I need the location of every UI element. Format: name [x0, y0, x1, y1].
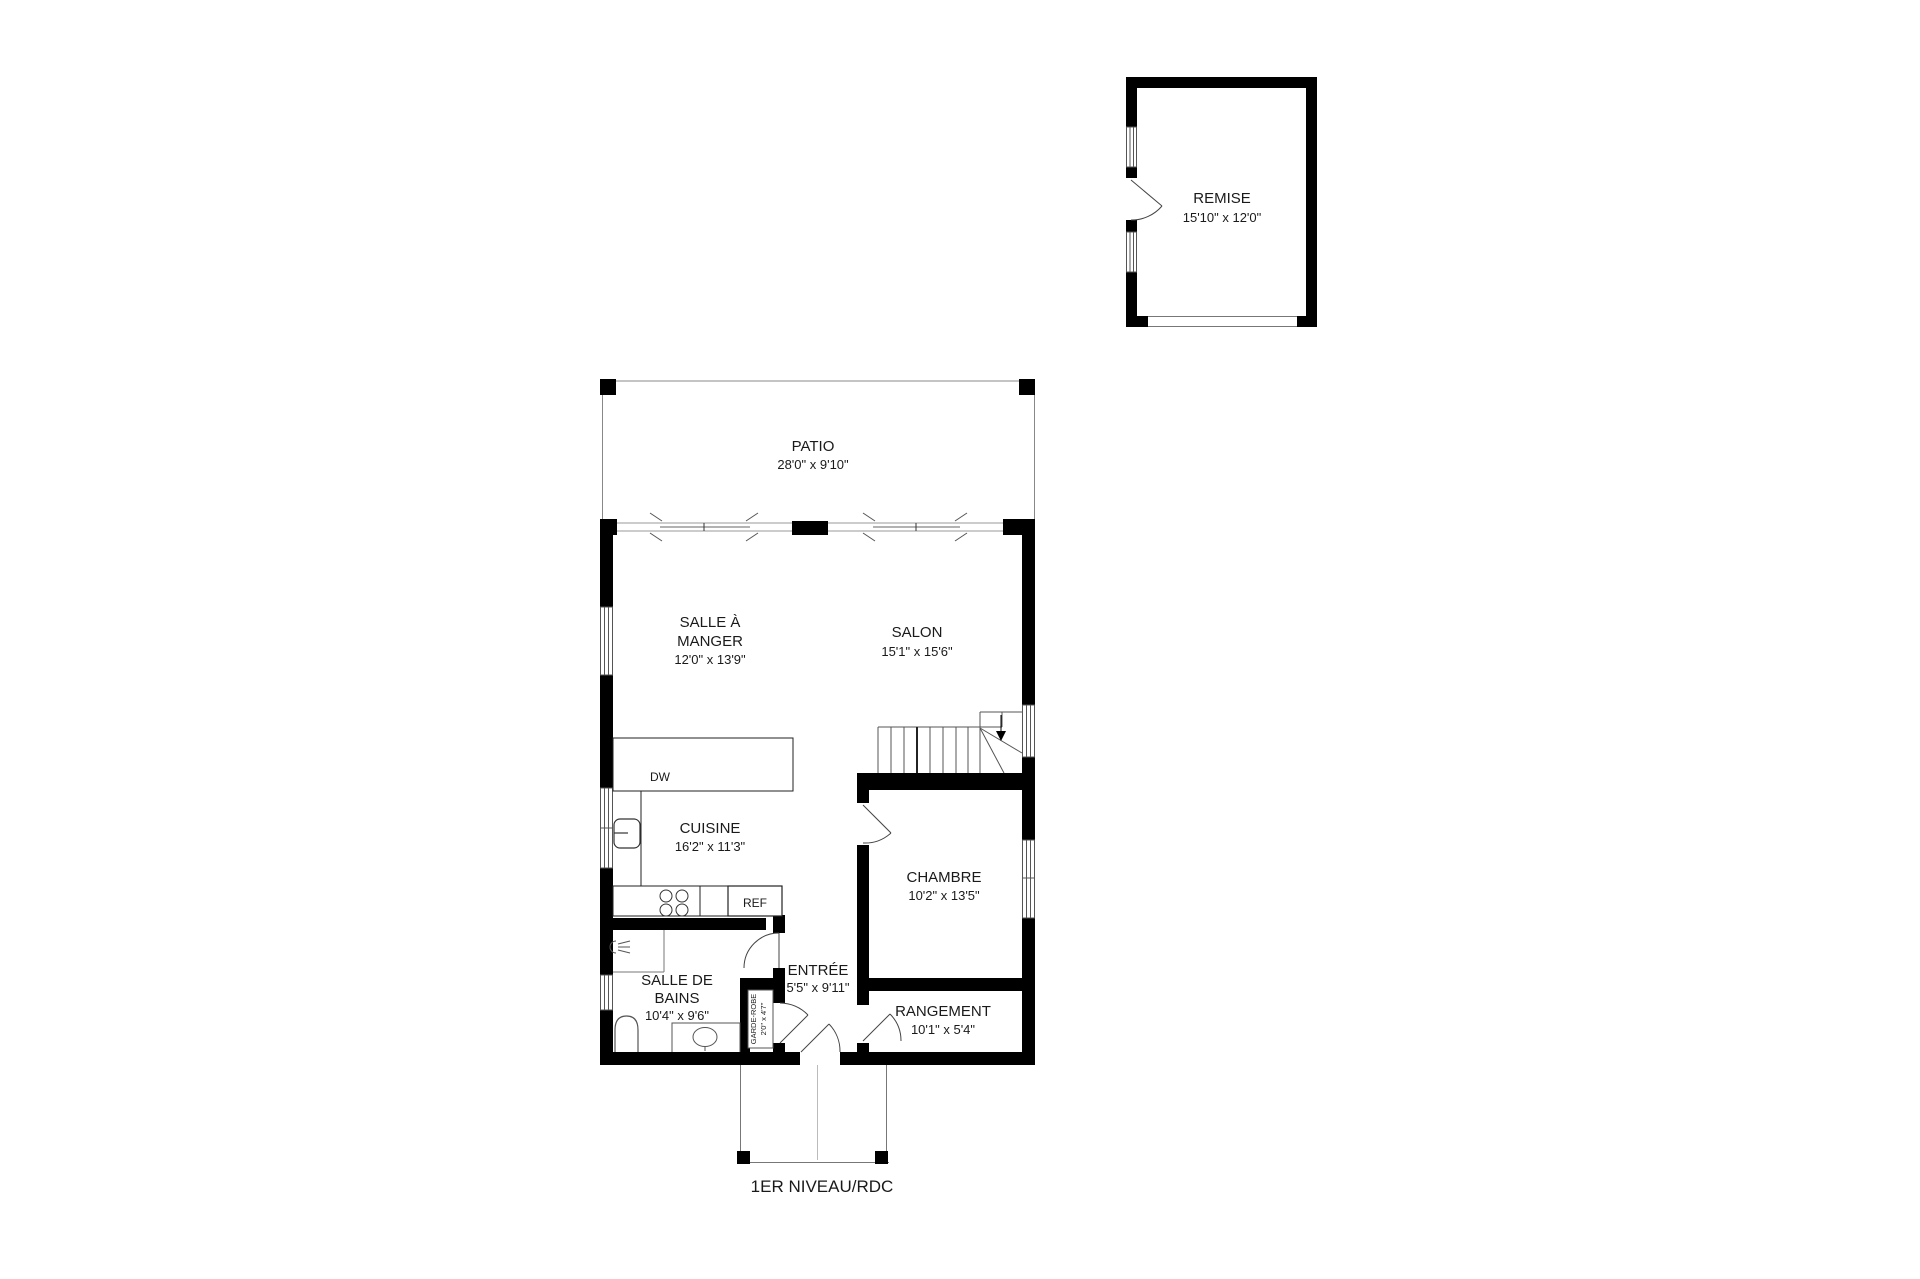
cuisine-label: CUISINE — [680, 820, 741, 837]
salle-de-bains-label: BAINS — [654, 990, 699, 1007]
garde-robe-door-swing — [780, 1003, 808, 1043]
vanity-sink — [693, 1028, 717, 1047]
dishwasher-label: DW — [650, 770, 671, 784]
patio-dims: 28'0" x 9'10" — [777, 457, 849, 472]
remise-window — [1127, 127, 1137, 167]
patio-post — [600, 379, 616, 395]
stairs — [878, 712, 1022, 773]
front-porch — [737, 1065, 889, 1164]
remise-label: REMISE — [1193, 190, 1251, 207]
toilet — [615, 1016, 638, 1052]
remise-bottom-opening — [1148, 317, 1297, 327]
rangement-label: RANGEMENT — [895, 1003, 991, 1020]
window — [1023, 840, 1035, 918]
shower — [610, 930, 664, 972]
window — [601, 975, 613, 1010]
salle-de-bains-dims: 10'4" x 9'6" — [645, 1008, 709, 1023]
vanity — [672, 1023, 740, 1052]
refrigerator-label: REF — [743, 896, 767, 910]
garde-robe-dims: 2'0" x 4'7" — [759, 1002, 768, 1035]
salle-a-manger-label: MANGER — [677, 633, 743, 650]
floor-plan-drawing: REMISE 15'10" x 12'0" PATIO 28'0" x 9'10… — [0, 0, 1920, 1279]
cuisine-dims: 16'2" x 11'3" — [675, 839, 746, 854]
salon-label: SALON — [892, 624, 943, 641]
salle-a-manger-label: SALLE À — [680, 614, 741, 631]
front-door-swing — [801, 1024, 840, 1052]
remise-dims: 15'10" x 12'0" — [1183, 210, 1262, 225]
window — [601, 788, 613, 868]
porch-post — [737, 1151, 750, 1164]
room-remise: REMISE 15'10" x 12'0" — [1126, 77, 1317, 327]
patio-post — [1019, 379, 1035, 395]
rangement-dims: 10'1" x 5'4" — [911, 1022, 975, 1037]
bathroom-door-swing — [744, 933, 779, 968]
kitchen-area: DW REF CUISINE 16'2" x 11'3" — [613, 738, 793, 916]
garde-robe: GARDE-ROBE 2'0" x 4'7" — [748, 990, 773, 1048]
salle-a-manger-dims: 12'0" x 13'9" — [674, 652, 746, 667]
sliding-door — [828, 513, 1003, 541]
chambre-dims: 10'2" x 13'5" — [908, 888, 980, 903]
chambre-label: CHAMBRE — [906, 869, 981, 886]
patio-label: PATIO — [792, 438, 835, 455]
chambre-door-swing — [863, 805, 891, 843]
kitchen-sink — [614, 819, 640, 848]
sliding-door — [617, 513, 792, 541]
salon-dims: 15'1" x 15'6" — [881, 644, 953, 659]
room-patio: PATIO 28'0" x 9'10" — [600, 379, 1035, 522]
salle-de-bains-label: SALLE DE — [641, 972, 713, 989]
cooktop — [660, 890, 688, 916]
window — [1023, 705, 1035, 757]
level-label: 1ER NIVEAU/RDC — [751, 1177, 894, 1196]
stair-direction-arrow — [996, 715, 1006, 741]
remise-window — [1127, 232, 1137, 272]
porch-post — [875, 1151, 888, 1164]
garde-robe-label: GARDE-ROBE — [749, 994, 758, 1044]
bathroom-area: SALLE DE BAINS 10'4" x 9'6" — [610, 930, 740, 1052]
remise-door-swing — [1131, 180, 1162, 220]
entree-label: ENTRÉE — [788, 962, 849, 979]
entree-dims: 5'5" x 9'11" — [786, 980, 849, 995]
window — [601, 607, 613, 675]
floor-plan-page: REMISE 15'10" x 12'0" PATIO 28'0" x 9'10… — [0, 0, 1920, 1279]
